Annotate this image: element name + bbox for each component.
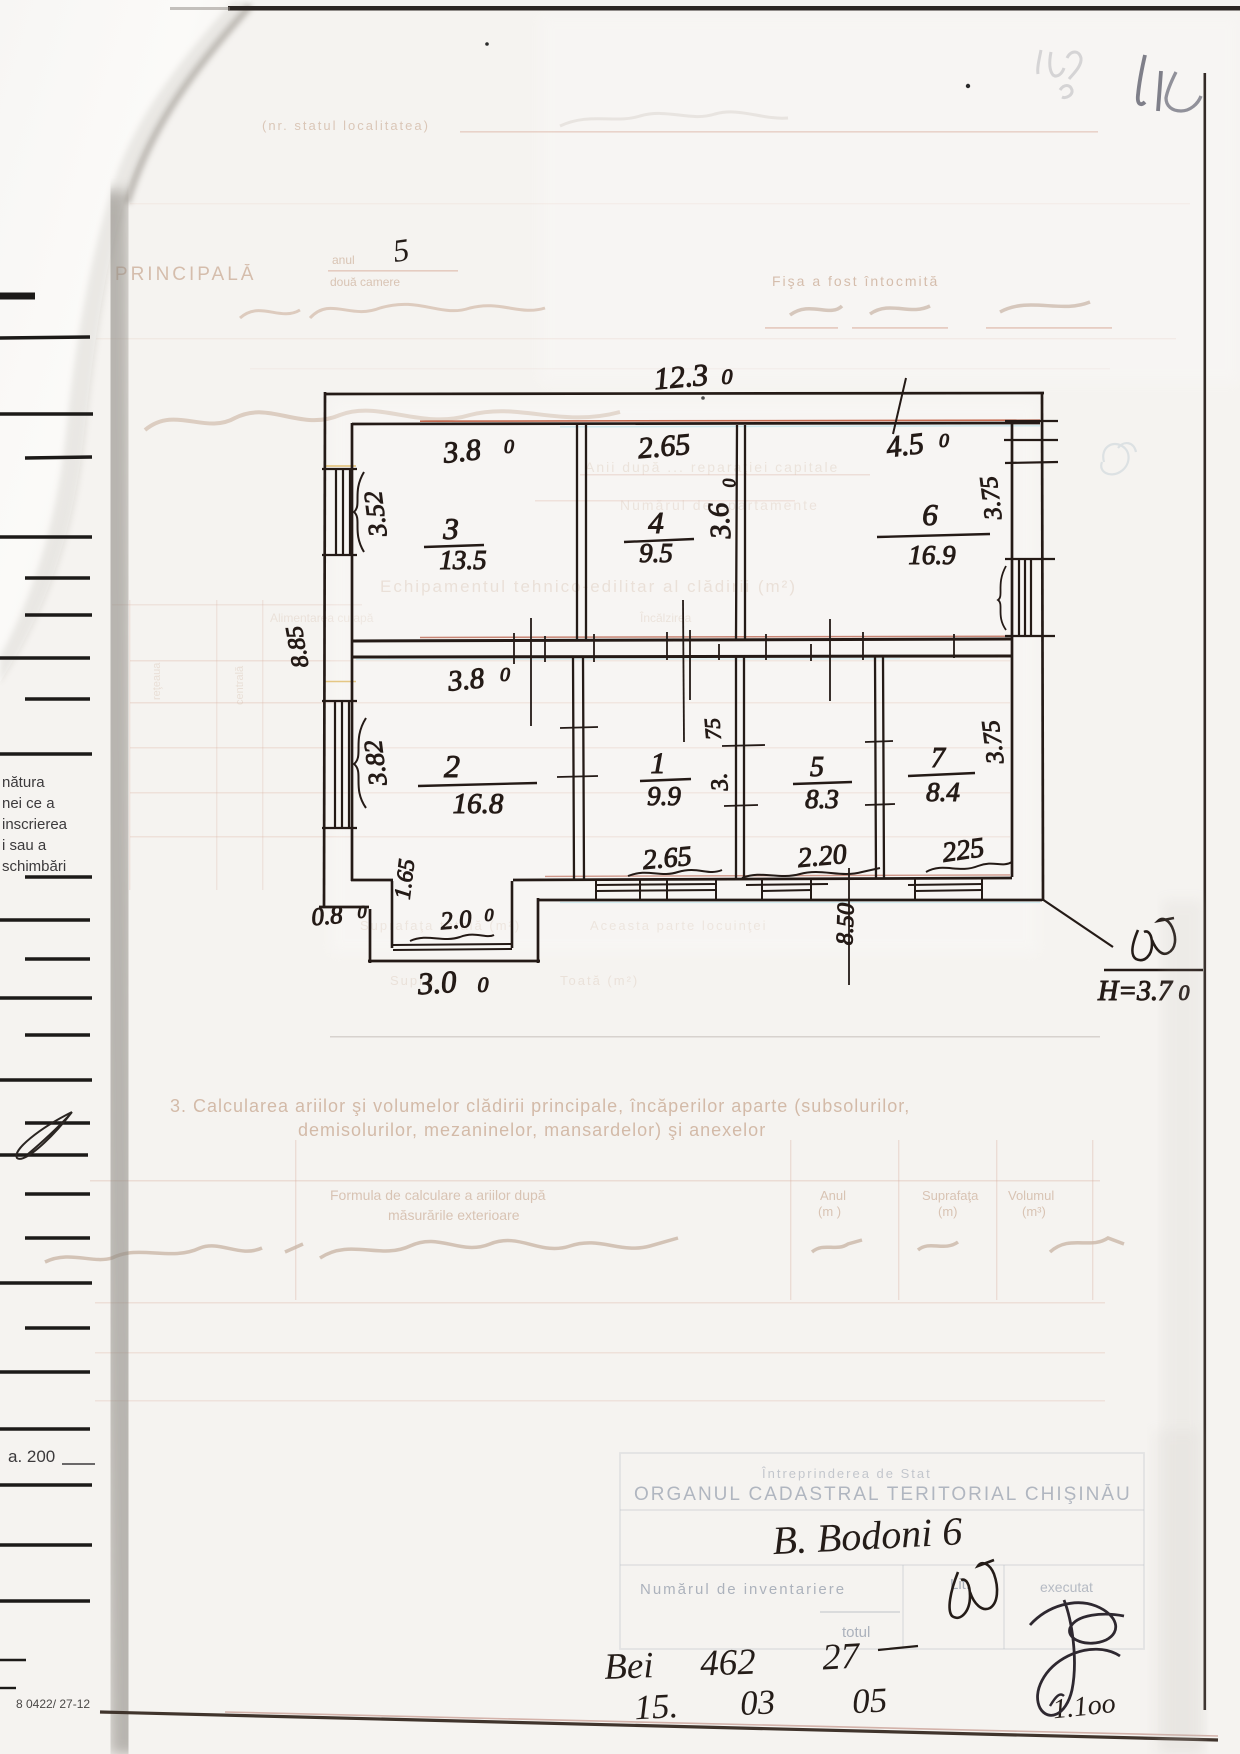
svg-text:nei ce a: nei ce a (2, 795, 55, 812)
svg-text:Anul: Anul (820, 1188, 846, 1203)
svg-text:Suprafaţa: Suprafaţa (922, 1188, 979, 1203)
svg-text:2.65: 2.65 (636, 428, 691, 465)
svg-text:(m³): (m³) (1022, 1204, 1046, 1219)
svg-text:27: 27 (821, 1635, 862, 1678)
svg-text:6: 6 (922, 497, 938, 532)
svg-text:3.6: 3.6 (702, 501, 737, 541)
svg-text:3.82: 3.82 (358, 739, 392, 789)
svg-text:0: 0 (478, 972, 489, 997)
svg-text:0: 0 (358, 902, 367, 922)
svg-text:reţeaua: reţeaua (151, 662, 163, 700)
svg-text:5: 5 (810, 752, 824, 783)
svg-text:16.9: 16.9 (908, 540, 956, 570)
svg-text:03: 03 (739, 1682, 776, 1723)
svg-text:Formula de calculare a ariilor: Formula de calculare a ariilor după (330, 1187, 546, 1203)
svg-text:15.: 15. (633, 1686, 679, 1727)
svg-text:1.65: 1.65 (390, 858, 420, 901)
svg-text:Volumul: Volumul (1008, 1188, 1054, 1203)
svg-text:H=3.7: H=3.7 (1097, 976, 1173, 1007)
svg-text:două camere: două camere (330, 275, 400, 289)
svg-text:1: 1 (651, 747, 666, 780)
svg-text:0: 0 (500, 664, 510, 686)
svg-text:3: 3 (442, 511, 459, 546)
svg-text:225: 225 (940, 832, 986, 869)
svg-text:a. 200: a. 200 (8, 1447, 55, 1466)
svg-text:demisolurilor, mezaninelor,: demisolurilor, mezaninelor, mansardelor)… (298, 1120, 766, 1140)
svg-text:4.5: 4.5 (884, 427, 925, 464)
svg-text:Întreprinderea de Stat: Întreprinderea de Stat (761, 1466, 932, 1481)
svg-text:2: 2 (444, 748, 460, 784)
svg-text:0.8: 0.8 (310, 902, 344, 932)
svg-text:7: 7 (931, 743, 946, 774)
svg-text:75: 75 (699, 717, 726, 741)
svg-text:2.0: 2.0 (439, 906, 473, 936)
svg-text:anul: anul (332, 253, 355, 267)
svg-text:3.75: 3.75 (975, 475, 1007, 523)
svg-text:8.3: 8.3 (805, 784, 839, 814)
svg-text:16.8: 16.8 (453, 788, 504, 820)
svg-text:schimbări: schimbări (2, 858, 66, 875)
svg-text:i sau a: i sau a (2, 837, 47, 854)
svg-text:3.8: 3.8 (445, 662, 486, 698)
svg-text:nătura: nătura (2, 774, 45, 791)
svg-text:Toată (m²): Toată (m²) (560, 973, 639, 988)
svg-text:4: 4 (648, 505, 664, 540)
svg-text:Bei: Bei (604, 1645, 655, 1688)
svg-text:8.50: 8.50 (832, 903, 859, 946)
svg-text:(m): (m) (938, 1204, 958, 1219)
svg-text:0: 0 (722, 364, 733, 389)
svg-text:3.75: 3.75 (977, 719, 1009, 767)
svg-text:ORGANUL CADASTRAL TERITORIAL: ORGANUL CADASTRAL TERITORIAL CHIŞINĂU (634, 1484, 1132, 1505)
svg-text:05: 05 (851, 1680, 888, 1721)
svg-text:12.3: 12.3 (652, 357, 709, 397)
svg-text:(m ): (m ) (818, 1204, 841, 1219)
svg-text:9.9: 9.9 (647, 781, 681, 811)
svg-text:executat: executat (1040, 1579, 1093, 1595)
svg-text:Numărul de inventariere: Numărul de inventariere (640, 1581, 846, 1598)
svg-text:măsurările exterioare: măsurările exterioare (388, 1207, 520, 1223)
svg-text:0: 0 (939, 430, 949, 452)
svg-text:3. Calcularea ariilor şi vo: 3. Calcularea ariilor şi volumelor clădi… (170, 1096, 910, 1116)
svg-text:3.: 3. (706, 772, 734, 793)
svg-text:8 0422/ 27-12: 8 0422/ 27-12 (16, 1697, 90, 1711)
svg-text:Fişa a fost întocmită: Fişa a fost întocmită (772, 273, 939, 289)
svg-text:centrală: centrală (234, 665, 246, 705)
svg-text:0: 0 (504, 436, 514, 458)
svg-text:0: 0 (485, 905, 494, 925)
svg-text:3.52: 3.52 (358, 490, 392, 540)
svg-text:8.4: 8.4 (926, 777, 960, 807)
svg-text:13.5: 13.5 (439, 545, 486, 575)
svg-text:9.5: 9.5 (639, 538, 673, 568)
svg-text:0: 0 (719, 478, 740, 489)
svg-text:inscrierea: inscrierea (2, 816, 68, 833)
svg-text:3.0: 3.0 (415, 964, 458, 1002)
svg-text:(nr. statul localitatea): (nr. statul localitatea) (262, 118, 430, 133)
svg-text:3.8: 3.8 (441, 433, 483, 470)
svg-text:2.20: 2.20 (796, 839, 848, 874)
svg-text:462: 462 (699, 1642, 756, 1685)
